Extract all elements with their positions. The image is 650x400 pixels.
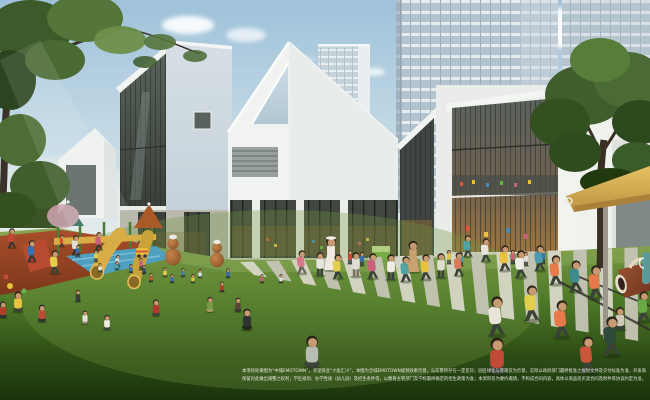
rendering-image: 本项目效果图为“中城EMOTOWN”，邻里商业“小鱼汇川”，本图为全域EMOTO… xyxy=(0,0,650,400)
caption-line-2: 保留对此做出调整之权利；学区规划、办学性质（幼儿园）及招生条件等，以教育主管部门… xyxy=(242,375,646,382)
canopy-pole xyxy=(603,198,608,338)
caption-line-1: 本项目效果图为“中城EMOTOWN”，邻里商业“小鱼汇川”，本图为全域EMOTO… xyxy=(242,367,647,374)
ball xyxy=(22,289,27,294)
ball xyxy=(4,275,9,280)
ball xyxy=(7,283,13,289)
scene-canvas: 本项目效果图为“中城EMOTOWN”，邻里商业“小鱼汇川”，本图为全域EMOTO… xyxy=(0,0,650,400)
louver-strip xyxy=(232,147,278,177)
